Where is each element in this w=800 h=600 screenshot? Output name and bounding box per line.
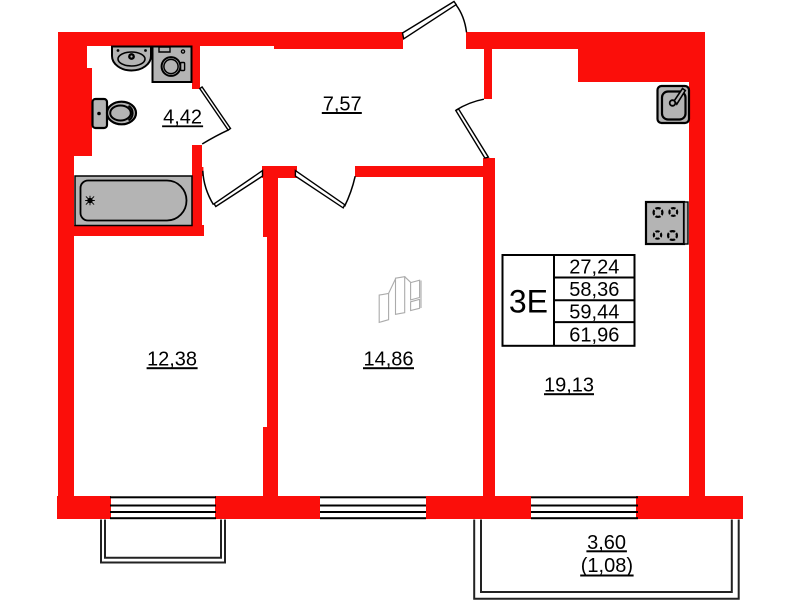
svg-text:59,44: 59,44: [569, 302, 619, 324]
svg-text:58,36: 58,36: [569, 279, 619, 301]
svg-text:14,86: 14,86: [363, 348, 413, 370]
svg-text:12,38: 12,38: [147, 348, 197, 370]
svg-text:61,96: 61,96: [569, 324, 619, 346]
svg-text:4,42: 4,42: [163, 107, 202, 129]
svg-text:27,24: 27,24: [569, 256, 619, 278]
svg-text:(1,08): (1,08): [581, 555, 633, 577]
svg-text:19,13: 19,13: [544, 374, 594, 396]
svg-text:3Е: 3Е: [509, 284, 548, 320]
